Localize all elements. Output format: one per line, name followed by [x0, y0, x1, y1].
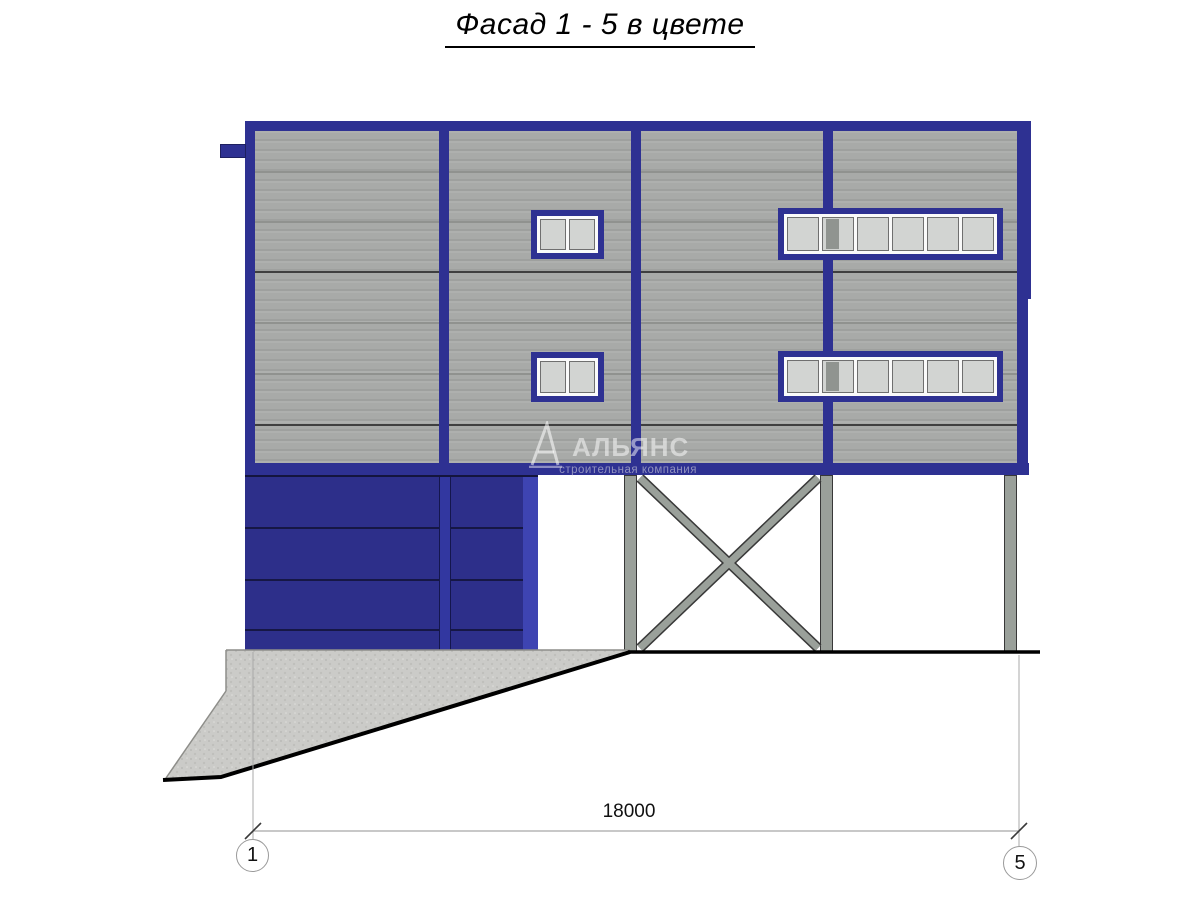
gutter-outlet	[220, 144, 246, 158]
axis-label: 5	[1014, 852, 1025, 875]
garage-panel-line	[245, 579, 538, 581]
facade-drawing-sheet: Фасад 1 - 5 в цвете	[0, 0, 1200, 900]
window-pane	[962, 360, 994, 393]
axis-marker-5: 5	[1003, 846, 1037, 880]
facade-mullion	[823, 131, 833, 463]
window-shadow-stripe	[826, 219, 839, 249]
garage-edge-strip	[523, 477, 538, 650]
steel-column	[820, 475, 833, 652]
window-pane	[569, 219, 595, 250]
frame-right-border-lower	[1017, 299, 1028, 463]
window-pane	[857, 360, 889, 393]
window-pane	[787, 360, 819, 393]
window-pane	[569, 361, 595, 393]
dimension-tick	[245, 823, 261, 839]
garage-door-section	[245, 475, 538, 650]
dimension-tick	[1011, 823, 1027, 839]
window-pane	[787, 217, 819, 251]
steel-column	[1004, 475, 1017, 652]
window-pane	[892, 217, 924, 251]
garage-mullion	[439, 477, 451, 650]
dimension-value: 18000	[579, 801, 679, 823]
ribbon-window-lower	[778, 351, 1003, 402]
facade-mullion	[631, 131, 641, 463]
garage-panel-line	[245, 527, 538, 529]
window-sash	[784, 214, 997, 254]
window-sash	[537, 358, 598, 396]
concrete-ramp-edge	[166, 650, 630, 778]
small-window-upper	[531, 210, 604, 259]
window-pane	[927, 360, 959, 393]
concrete-ramp	[165, 650, 630, 779]
window-shadow-stripe	[826, 362, 839, 391]
ramp-slope-line	[163, 652, 630, 780]
small-window-lower	[531, 352, 604, 402]
alliance-sail-logo-icon	[528, 421, 564, 468]
drawing-title: Фасад 1 - 5 в цвете	[445, 8, 754, 48]
window-pane	[892, 360, 924, 393]
window-pane	[962, 217, 994, 251]
facade-mullion	[439, 131, 449, 463]
axis-marker-1: 1	[236, 839, 269, 872]
window-sash	[784, 357, 997, 396]
window-sash	[537, 216, 598, 253]
steel-column	[624, 475, 637, 652]
window-pane	[927, 217, 959, 251]
window-pane	[540, 361, 566, 393]
window-pane	[857, 217, 889, 251]
drawing-title-row: Фасад 1 - 5 в цвете	[0, 8, 1200, 48]
ribbon-window-upper	[778, 208, 1003, 260]
watermark-company-name: АЛЬЯНС	[572, 432, 688, 463]
garage-panel-line	[245, 629, 538, 631]
frame-top-band	[245, 121, 1031, 131]
axis-label: 1	[247, 844, 258, 867]
window-pane	[540, 219, 566, 250]
frame-right-border-upper	[1017, 131, 1031, 299]
x-bracing	[640, 478, 818, 648]
